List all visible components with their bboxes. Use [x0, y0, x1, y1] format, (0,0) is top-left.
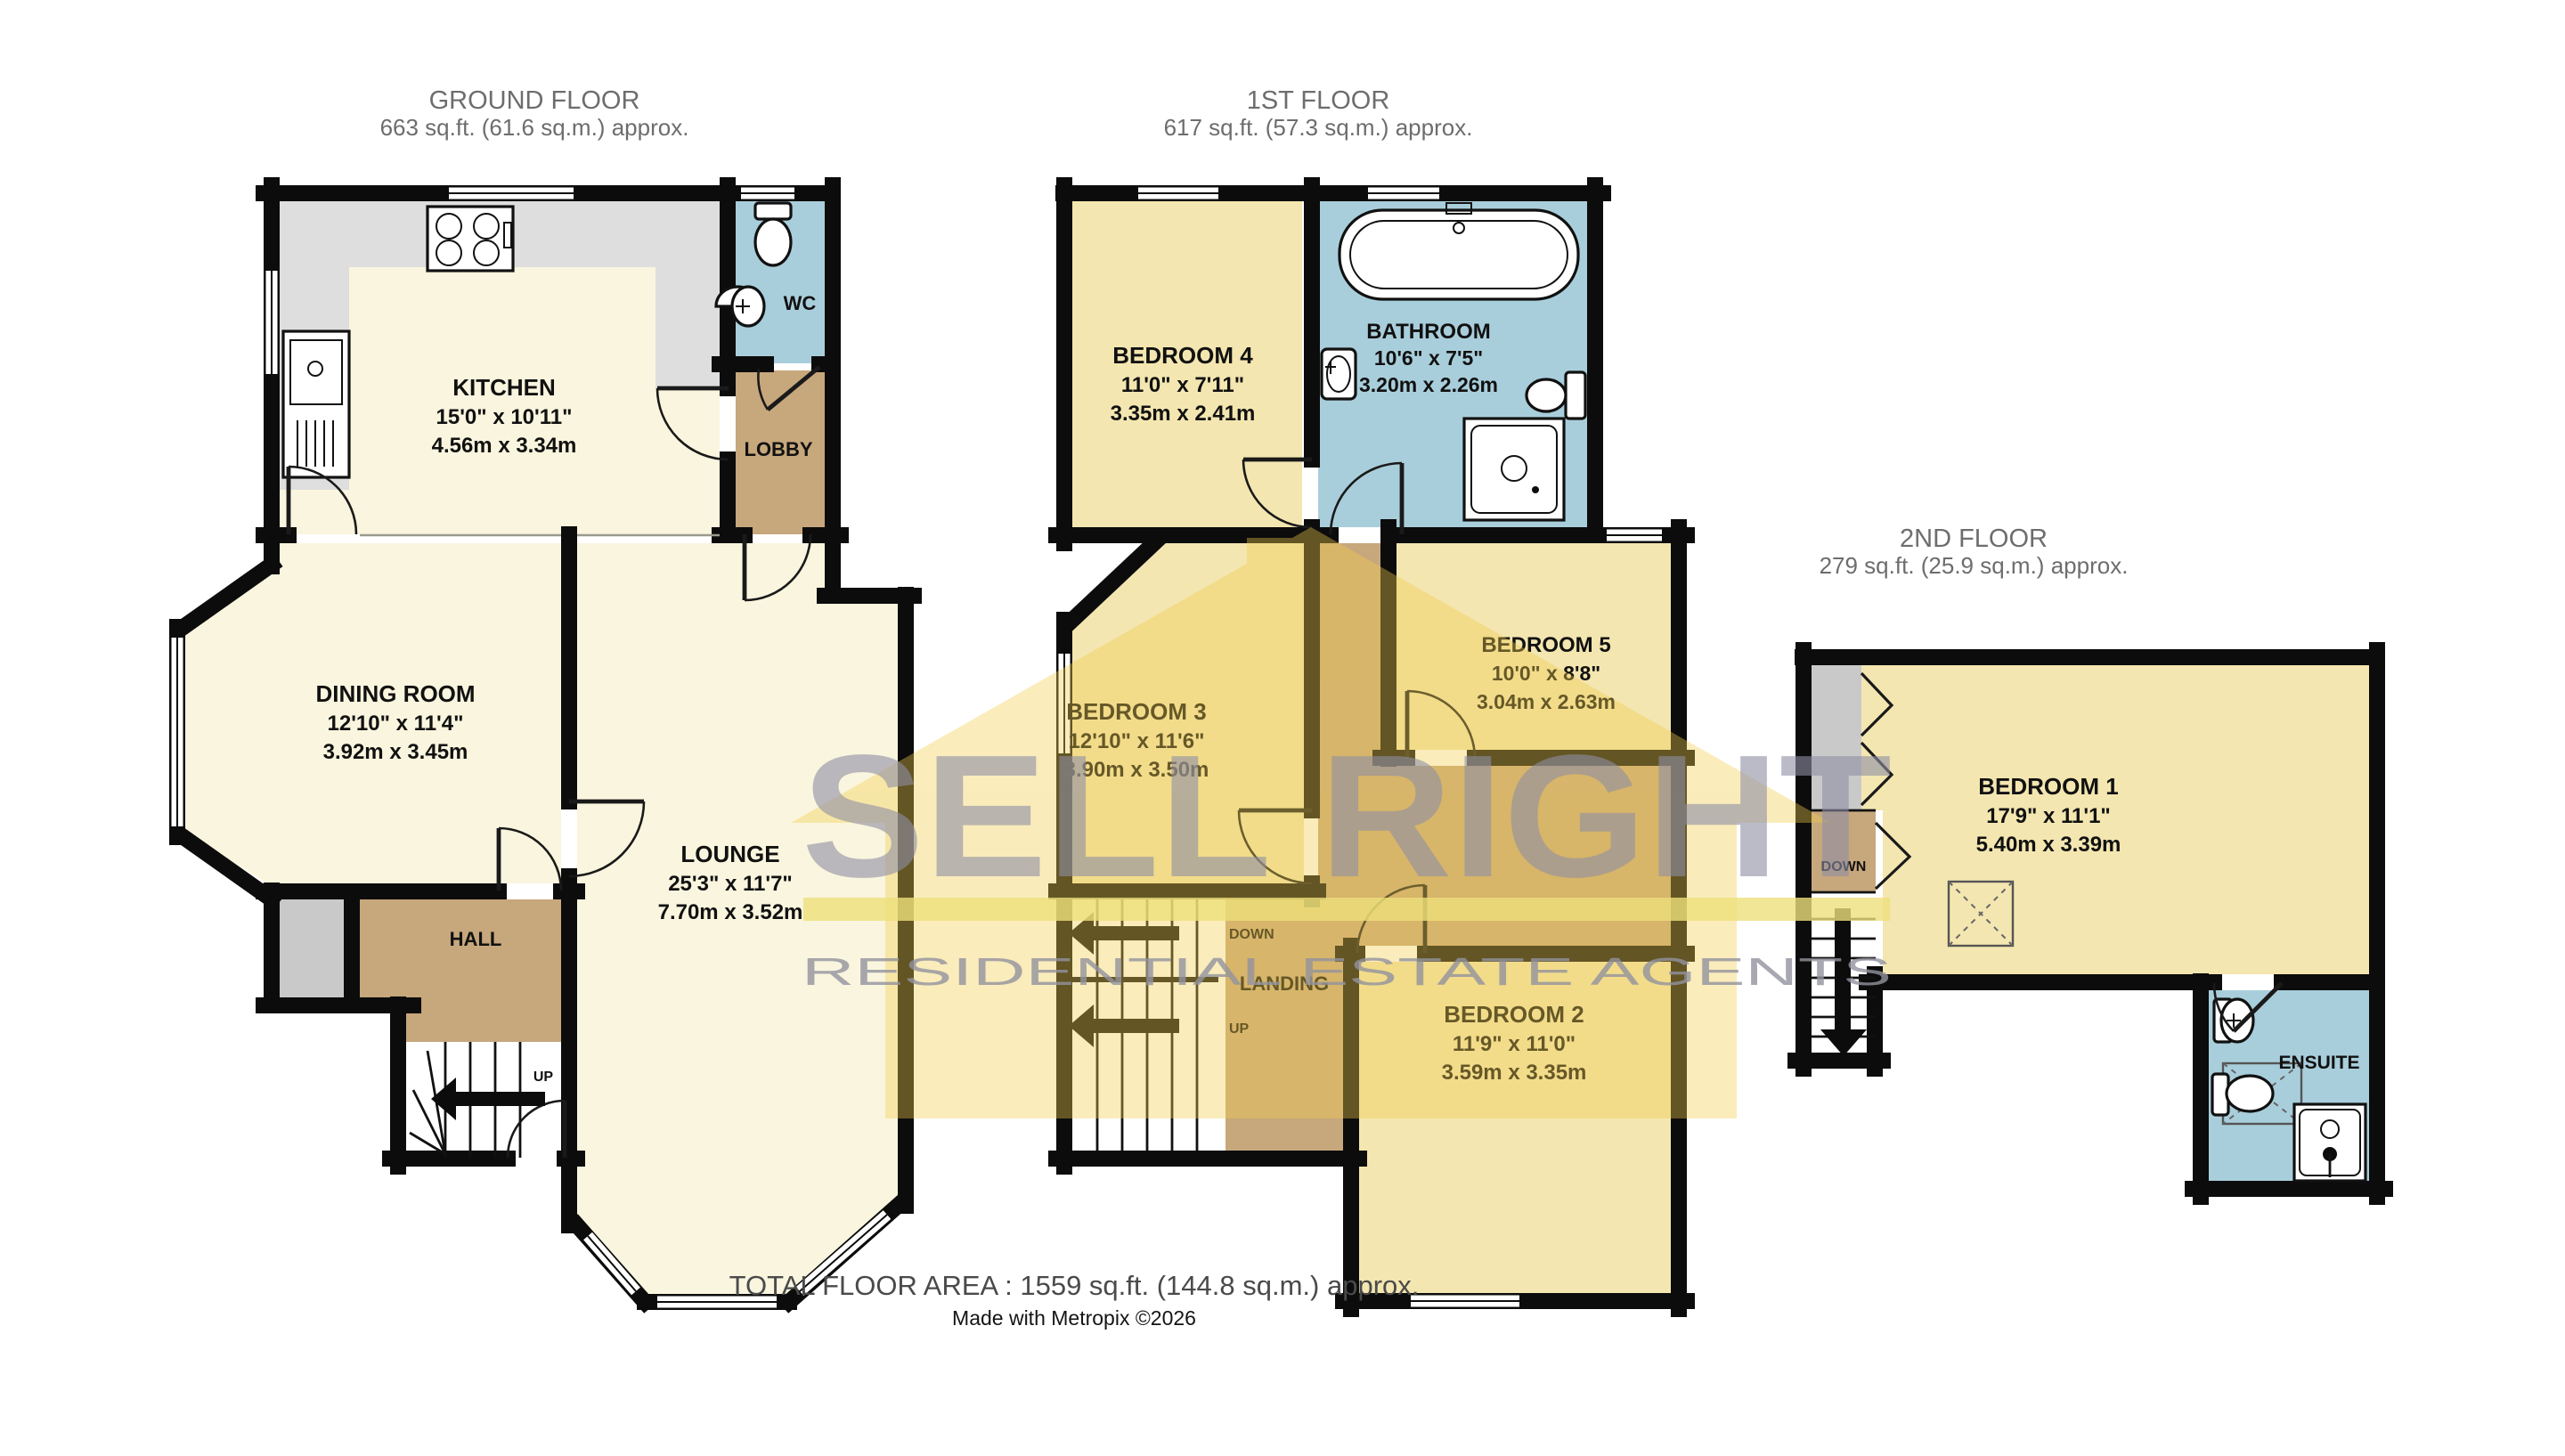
hall-storage — [280, 899, 344, 997]
total-floor-area: TOTAL FLOOR AREA : 1559 sq.ft. (144.8 sq… — [729, 1270, 1420, 1301]
lounge-dims-imperial: 25'3" x 11'7" — [668, 872, 793, 896]
bedroom1-label: BEDROOM 1 — [1978, 773, 2118, 800]
second-floor-area: 279 sq.ft. (25.9 sq.m.) approx. — [1820, 552, 2129, 579]
watermark-brand: SELL RIGHT — [802, 719, 1892, 914]
lobby-label: LOBBY — [745, 438, 813, 460]
dining-dims-imperial: 12'10" x 11'4" — [328, 712, 464, 736]
bathroom-dims-imperial: 10'6" x 7'5" — [1374, 346, 1483, 370]
dining-dims-metric: 3.92m x 3.45m — [323, 740, 468, 764]
basin-icon-bathroom — [1322, 349, 1356, 399]
wc-label: WC — [784, 292, 817, 314]
second-floor-title: 2ND FLOOR — [1900, 525, 2048, 553]
bathroom-dims-metric: 3.20m x 2.26m — [1359, 373, 1498, 396]
bedroom4-label: BEDROOM 4 — [1112, 342, 1253, 369]
ensuite-label: ENSUITE — [2278, 1053, 2359, 1073]
first-floor-area: 617 sq.ft. (57.3 sq.m.) approx. — [1164, 114, 1473, 141]
sink-icon — [283, 331, 349, 477]
gf-up-label: UP — [533, 1070, 554, 1085]
stove-icon — [427, 207, 513, 271]
floorplan-canvas: GROUND FLOOR 663 sq.ft. (61.6 sq.m.) app… — [0, 0, 2565, 1456]
dining-label: DINING ROOM — [315, 680, 475, 707]
shower-icon-bathroom — [1464, 419, 1564, 520]
kitchen-label: KITCHEN — [452, 374, 556, 401]
metropix-credit: Made with Metropix ©2026 — [952, 1306, 1196, 1330]
ground-floor-plan: GROUND FLOOR 663 sq.ft. (61.6 sq.m.) app… — [177, 86, 914, 1302]
watermark-underline — [803, 898, 1890, 921]
bathroom-label: BATHROOM — [1366, 320, 1491, 344]
bedroom4-dims-imperial: 11'0" x 7'11" — [1121, 373, 1244, 397]
ground-floor-title: GROUND FLOOR — [429, 86, 640, 115]
first-floor-title: 1ST FLOOR — [1247, 86, 1390, 115]
kitchen-dims-imperial: 15'0" x 10'11" — [436, 405, 573, 429]
hall-label: HALL — [450, 928, 502, 950]
watermark: SELL RIGHT RESIDENTIAL ESTATE AGENTS — [791, 527, 1892, 1118]
basin-icon-ensuite — [2214, 999, 2253, 1042]
lounge-label: LOUNGE — [680, 841, 779, 867]
ground-floor-area: 663 sq.ft. (61.6 sq.m.) approx. — [380, 114, 689, 141]
bath-icon — [1339, 203, 1578, 299]
watermark-tagline: RESIDENTIAL ESTATE AGENTS — [802, 950, 1892, 994]
shower-icon-ensuite — [2294, 1104, 2365, 1181]
bedroom1-dims-metric: 5.40m x 3.39m — [1976, 833, 2121, 857]
kitchen-dims-metric: 4.56m x 3.34m — [432, 434, 577, 458]
lounge-dims-metric: 7.70m x 3.52m — [658, 900, 803, 924]
kitchen-counter-right — [655, 267, 720, 388]
bedroom1-dims-imperial: 17'9" x 11'1" — [1986, 804, 2111, 828]
bedroom1-floor — [1861, 664, 2369, 974]
bedroom4-dims-metric: 3.35m x 2.41m — [1111, 402, 1256, 426]
toilet-icon-wc — [755, 203, 791, 265]
